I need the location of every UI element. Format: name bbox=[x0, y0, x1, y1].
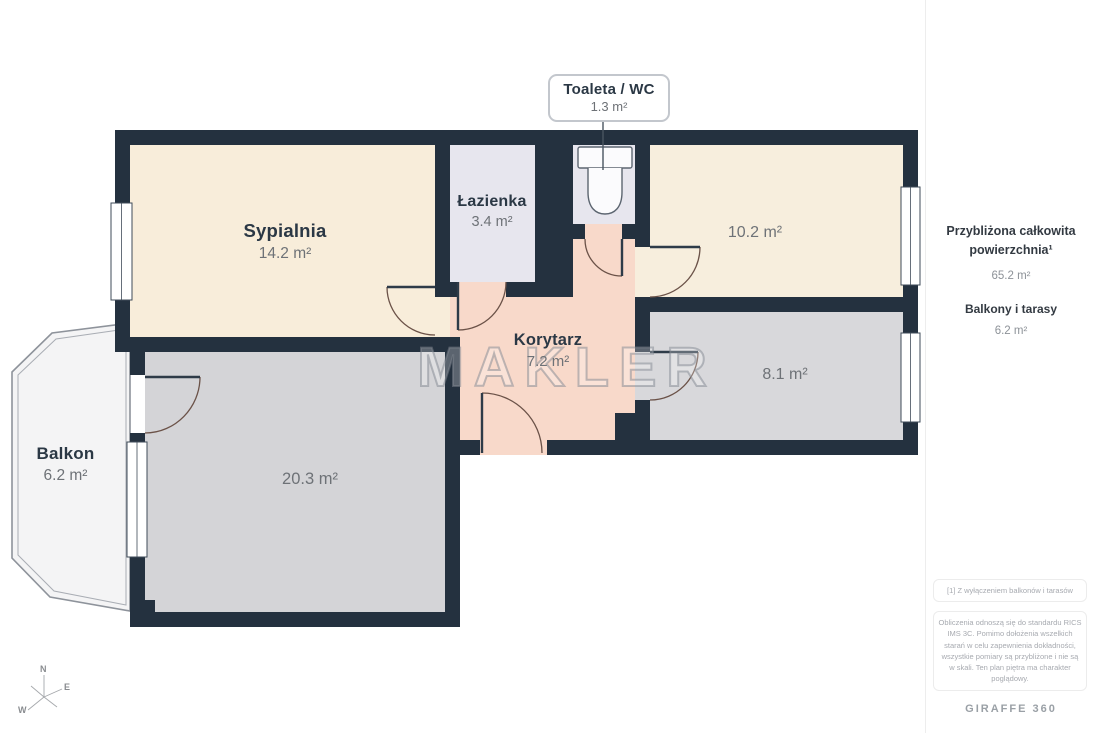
balcony-outline bbox=[12, 323, 130, 611]
room-8-1-window bbox=[901, 333, 920, 422]
disclaimer-box: Obliczenia odnoszą się do standardu RICS… bbox=[933, 611, 1087, 691]
total-area-label: Przybliżona całkowita powierzchnia¹ bbox=[931, 222, 1091, 261]
compass-n-label: N bbox=[40, 664, 47, 674]
makler-watermark: MAKLER bbox=[402, 334, 732, 399]
area-summary: Przybliżona całkowita powierzchnia¹ 65.2… bbox=[931, 222, 1091, 337]
balconies-label: Balkony i tarasy bbox=[931, 302, 1091, 316]
giraffe360-logo: GIRAFFE 360 bbox=[931, 703, 1091, 715]
toilet-callout-area: 1.3 m² bbox=[554, 99, 664, 114]
compass-icon: N E W bbox=[18, 664, 70, 715]
bedroom-window bbox=[111, 203, 132, 300]
floorplan-page: N E W MAKLER Toaleta / WC 1.3 m² Sypialn… bbox=[0, 0, 1100, 733]
total-area-value: 65.2 m² bbox=[931, 270, 1091, 282]
room-10-2-window bbox=[901, 187, 920, 285]
compass-e-label: E bbox=[64, 682, 70, 692]
toilet-callout-title: Toaleta / WC bbox=[554, 81, 664, 98]
balconies-value: 6.2 m² bbox=[931, 325, 1091, 337]
info-sidebar: Przybliżona całkowita powierzchnia¹ 65.2… bbox=[925, 0, 1100, 733]
compass-w-label: W bbox=[18, 705, 27, 715]
living-balcony-window bbox=[127, 442, 147, 557]
footnote-box: [1] Z wyłączeniem balkonów i tarasów bbox=[933, 579, 1087, 602]
toilet-callout: Toaleta / WC 1.3 m² bbox=[548, 74, 670, 122]
